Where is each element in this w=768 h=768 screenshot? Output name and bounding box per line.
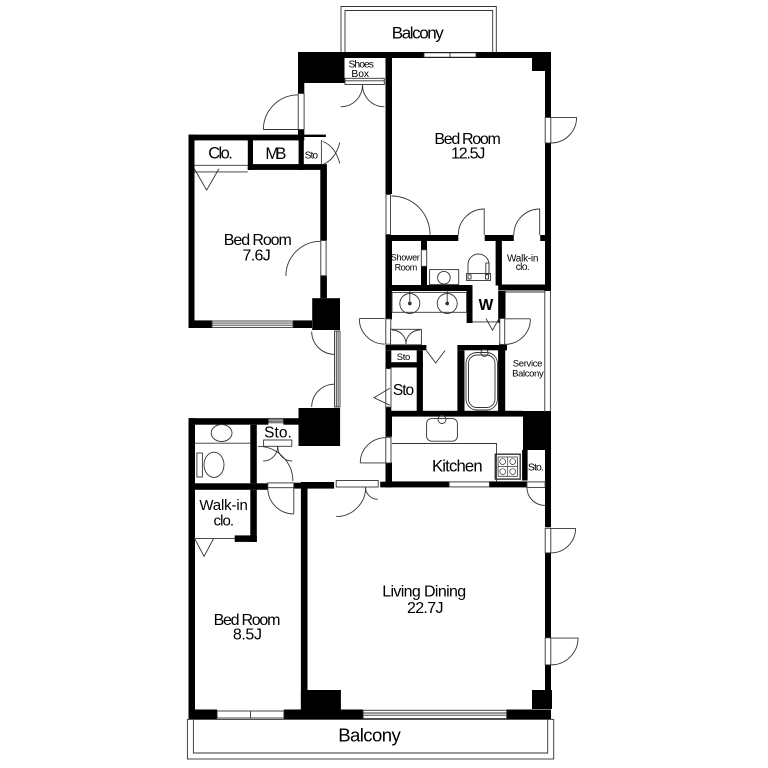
svg-text:clo.: clo. [214, 513, 235, 530]
svg-text:Walk-in: Walk-in [199, 497, 248, 514]
svg-text:Sto.: Sto. [264, 424, 292, 441]
svg-text:Sto: Sto [397, 352, 411, 363]
svg-text:Room: Room [395, 262, 418, 272]
svg-text:Shower: Shower [391, 253, 420, 263]
svg-text:Sto: Sto [305, 151, 319, 162]
svg-text:Box: Box [351, 69, 369, 80]
svg-text:MB: MB [265, 145, 286, 163]
svg-text:Clo.: Clo. [208, 145, 233, 163]
svg-text:Balcony: Balcony [512, 369, 544, 380]
svg-text:Kitchen: Kitchen [432, 457, 483, 476]
svg-text:8.5J: 8.5J [233, 627, 262, 644]
svg-text:7.6J: 7.6J [243, 248, 271, 265]
svg-text:Balcony: Balcony [338, 725, 401, 746]
svg-text:Sto.: Sto. [528, 461, 544, 473]
svg-text:Sto: Sto [393, 382, 414, 399]
svg-text:clo.: clo. [516, 262, 530, 273]
svg-text:Living Dining: Living Dining [382, 584, 466, 601]
svg-text:22.7J: 22.7J [407, 600, 444, 617]
svg-text:W: W [479, 297, 494, 314]
svg-text:Balcony: Balcony [392, 23, 445, 42]
svg-text:Bed Room: Bed Room [224, 232, 292, 249]
svg-text:12.5J: 12.5J [451, 146, 485, 163]
